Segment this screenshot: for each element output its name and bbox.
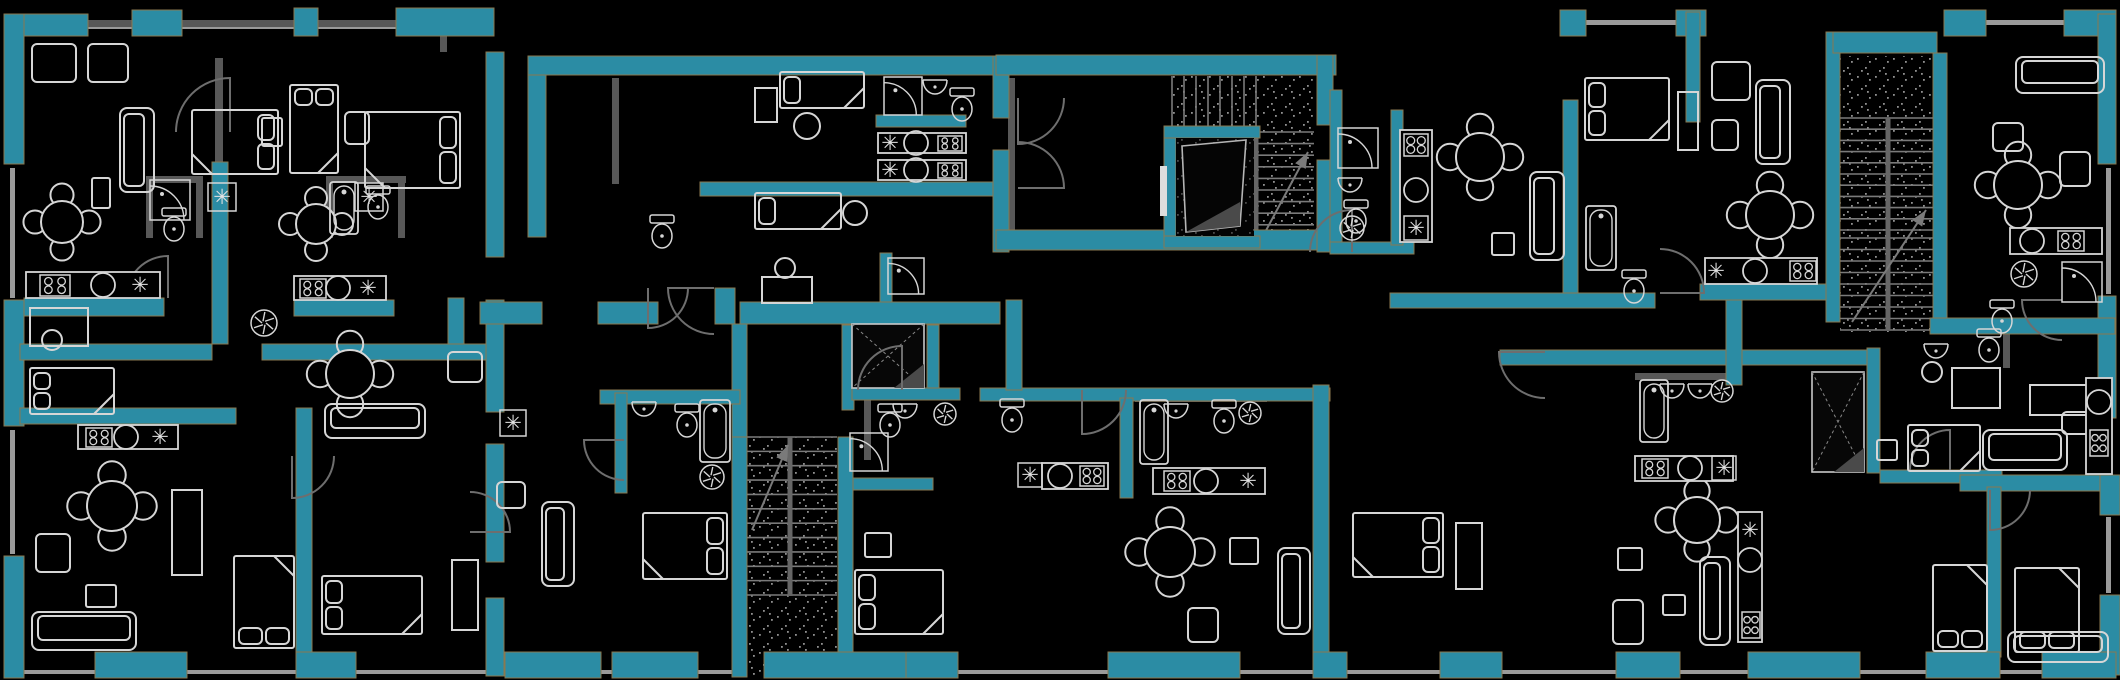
wall-teal (486, 444, 504, 562)
wall-teal (615, 393, 627, 493)
wall-teal (732, 324, 747, 437)
wall-teal (1440, 652, 1502, 678)
basin-dot (903, 409, 906, 412)
wall-teal (1826, 32, 1840, 322)
tub-drain (1652, 388, 1657, 393)
wall-teal (1390, 293, 1655, 308)
elevator-door (1160, 166, 1167, 216)
kitchen-counter (2086, 378, 2112, 474)
washer-asterisk-icon: ✳ (1741, 518, 1759, 542)
toilet-dot (660, 234, 664, 238)
wall-teal (1960, 475, 2105, 491)
table-top (1456, 133, 1504, 181)
window (1986, 20, 2064, 25)
wall-teal (296, 652, 356, 678)
basin-dot (1670, 389, 1673, 392)
washer-asterisk-icon: ✳ (1715, 456, 1733, 480)
wall-gray (612, 78, 619, 184)
wall-teal (4, 14, 24, 164)
wall-teal (480, 302, 542, 324)
wall-teal (505, 652, 601, 678)
wall-teal (4, 300, 24, 426)
toilet-dot (1987, 348, 1991, 352)
toilet-dot (1632, 289, 1636, 293)
wall-teal (1944, 10, 1986, 36)
basin-dot (1348, 183, 1351, 186)
toilet-dot (172, 227, 176, 231)
toilet-dot (1354, 219, 1358, 223)
wall-teal (448, 298, 464, 346)
wall-teal (1108, 652, 1240, 678)
washer-asterisk-icon: ✳ (1407, 216, 1425, 240)
basin-dot (1934, 349, 1937, 352)
wall-teal (1560, 10, 1586, 36)
wall-teal (1926, 652, 2000, 678)
wall-teal (845, 478, 933, 490)
basin-dot (1698, 389, 1701, 392)
basin-dot (642, 407, 645, 410)
wall-teal (1313, 652, 1347, 678)
table-top (326, 350, 374, 398)
wall-teal (996, 55, 1336, 75)
toilet-dot (1222, 419, 1226, 423)
window (2106, 517, 2111, 593)
washer-asterisk-icon: ✳ (881, 158, 899, 182)
table-top (41, 201, 83, 243)
table-top (1994, 161, 2042, 209)
toilet-dot (685, 423, 689, 427)
wall-teal (296, 408, 312, 654)
washer-asterisk-icon: ✳ (881, 131, 899, 155)
floor-plan: ✳✳✳✳✳✳✳✳✳✳✳✳✳✳ (0, 0, 2120, 680)
wall-teal (20, 408, 236, 424)
table-top (87, 481, 137, 531)
washer-asterisk-icon: ✳ (504, 411, 522, 435)
shower-drain (859, 444, 863, 448)
shaft-box (1812, 372, 1864, 472)
wall-teal (2042, 652, 2116, 678)
wall-teal (927, 325, 939, 390)
wall-teal (612, 652, 698, 678)
window (1586, 20, 1676, 25)
wall-teal (732, 437, 747, 677)
wall-teal (1164, 126, 1260, 138)
wall-teal (1700, 284, 1830, 300)
washer-asterisk-icon: ✳ (131, 273, 149, 297)
wall-teal (528, 56, 1000, 75)
wall-teal (838, 437, 853, 677)
wall-teal (1563, 100, 1578, 305)
tub-drain (1152, 408, 1157, 413)
wall-teal (1006, 300, 1022, 390)
wall-teal (700, 182, 1000, 196)
toilet-dot (376, 205, 380, 209)
wall-teal (1867, 348, 1880, 473)
wall-teal (1726, 300, 1742, 385)
toilet-dot (960, 107, 964, 111)
wall-teal (1616, 652, 1680, 678)
tub-drain (713, 408, 718, 413)
wall-teal (1120, 398, 1133, 498)
washer-asterisk-icon: ✳ (359, 276, 377, 300)
wall-gray (182, 20, 294, 27)
wall-teal (1164, 236, 1260, 248)
shower-drain (893, 88, 897, 92)
shower-drain (2072, 274, 2076, 278)
wall-teal (880, 253, 892, 303)
window (2106, 168, 2111, 294)
table-top (1746, 191, 1794, 239)
table-top (1145, 527, 1195, 577)
washer-asterisk-icon: ✳ (1021, 463, 1039, 487)
wall-teal (528, 75, 546, 237)
shower-drain (1348, 140, 1352, 144)
washer-asterisk-icon: ✳ (360, 185, 378, 209)
tub-drain (342, 190, 347, 195)
wall-gray (318, 20, 396, 27)
window (10, 430, 15, 554)
wall-teal (2100, 475, 2120, 515)
table-top (1674, 497, 1720, 543)
shaft-box (852, 324, 924, 388)
wall-teal (715, 288, 735, 324)
washer-asterisk-icon: ✳ (151, 425, 169, 449)
floor-plan-canvas: ✳✳✳✳✳✳✳✳✳✳✳✳✳✳ (0, 0, 2120, 680)
wall-teal (740, 302, 1000, 324)
washer-asterisk-icon: ✳ (213, 185, 231, 209)
toilet-dot (1010, 418, 1014, 422)
wall-gray (1635, 373, 1738, 380)
wall-teal (876, 115, 966, 127)
wall-teal (486, 598, 504, 676)
wall-teal (980, 388, 1330, 401)
wall-teal (95, 652, 187, 678)
tub-drain (1599, 214, 1604, 219)
shower-drain (160, 192, 164, 196)
wall-teal (1748, 652, 1860, 678)
wall-teal (4, 556, 24, 678)
wall-gray (196, 176, 203, 238)
basin-dot (933, 85, 936, 88)
wall-teal (294, 300, 394, 316)
wall-teal (1500, 350, 1870, 365)
basin-dot (1174, 409, 1177, 412)
wall-teal (396, 8, 494, 36)
washer-asterisk-icon: ✳ (1239, 469, 1257, 493)
wall-teal (294, 8, 318, 36)
washer-asterisk-icon: ✳ (1707, 259, 1725, 283)
window (10, 168, 15, 298)
wall-teal (1933, 53, 1947, 321)
wall-teal (486, 52, 504, 257)
plan-background (0, 0, 2120, 680)
wall-teal (1313, 385, 1329, 675)
shower-drain (897, 269, 901, 273)
toilet-dot (2000, 319, 2004, 323)
wall-teal (132, 10, 182, 36)
wall-teal (906, 652, 958, 678)
wall-gray (864, 398, 871, 460)
wall-teal (1930, 318, 2115, 334)
wall-teal (852, 388, 960, 400)
wall-gray (398, 176, 405, 238)
wall-teal (1833, 32, 1937, 53)
wall-teal (2098, 14, 2116, 164)
wall-gray (88, 20, 132, 27)
toilet-dot (888, 423, 892, 427)
